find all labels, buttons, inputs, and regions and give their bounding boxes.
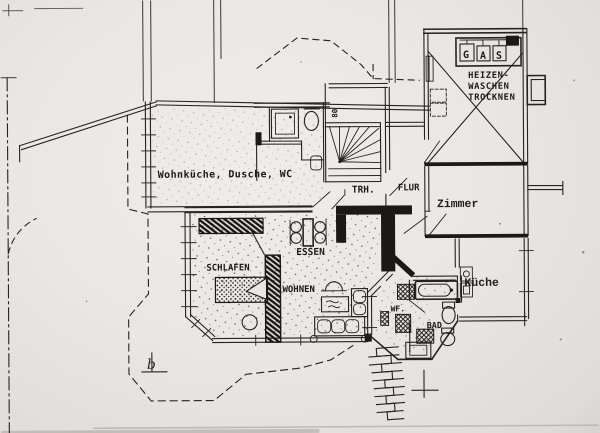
void-cross-mark bbox=[428, 51, 523, 163]
heizraum: G A S HEIZEN- WASCHEN TROCKNEN bbox=[424, 29, 546, 165]
window-symbol bbox=[519, 251, 533, 292]
washing-machine-symbol bbox=[417, 329, 434, 343]
floor-plan-scan: b Wohnküche, Dusche, WC bbox=[0, 0, 600, 433]
terrace-marker-b: b bbox=[142, 353, 167, 373]
radiator-symbol bbox=[426, 56, 433, 81]
wf-label: WF. bbox=[391, 304, 406, 313]
heizraum-label-3: TROCKNEN bbox=[468, 93, 515, 103]
washing-machine-symbol bbox=[396, 314, 411, 332]
washing-machine-symbol bbox=[397, 284, 414, 299]
wohnen-label: WOHNEN bbox=[282, 285, 315, 295]
schlafen-label: SCHLAFEN bbox=[206, 263, 249, 273]
gas-letter-g: G bbox=[463, 50, 469, 61]
exterior-steps-symbol bbox=[368, 347, 406, 421]
kueche-room: Küche bbox=[455, 239, 534, 326]
wardrobe-symbol bbox=[199, 218, 263, 233]
trh-label: TRH. bbox=[352, 185, 375, 196]
gas-unit-symbol: G A S bbox=[456, 36, 521, 66]
essen-label: ESSEN bbox=[296, 247, 325, 258]
upper-flat: Wohnküche, Dusche, WC bbox=[19, 0, 524, 213]
gas-letter-a: A bbox=[480, 51, 486, 62]
window-symbol bbox=[527, 75, 545, 104]
floor-plan-drawing: b Wohnküche, Dusche, WC bbox=[0, 0, 600, 433]
zimmer-room: Zimmer bbox=[425, 165, 563, 236]
heizraum-label-1: HEIZEN- bbox=[468, 71, 509, 81]
wohnkueche-label: Wohnküche, Dusche, WC bbox=[158, 169, 293, 181]
flur-label: FLUR bbox=[398, 183, 420, 193]
heizraum-label-2: WASCHEN bbox=[468, 82, 509, 92]
door-swing-symbol bbox=[404, 216, 427, 233]
bad-label: BAD bbox=[427, 321, 442, 331]
stair-width-label: 80 bbox=[330, 108, 339, 118]
toilet-symbol bbox=[442, 302, 455, 324]
bad-wf-annex: WF. BAD bbox=[368, 275, 462, 360]
zimmer-label: Zimmer bbox=[437, 198, 479, 211]
door-swing-symbol bbox=[425, 211, 446, 235]
winder-staircase-symbol: 80 TRH. bbox=[323, 83, 388, 208]
kueche-label: Küche bbox=[464, 277, 499, 290]
level-cross-mark bbox=[412, 370, 438, 397]
gas-letter-s: S bbox=[496, 51, 502, 62]
bed-symbol bbox=[215, 277, 267, 302]
